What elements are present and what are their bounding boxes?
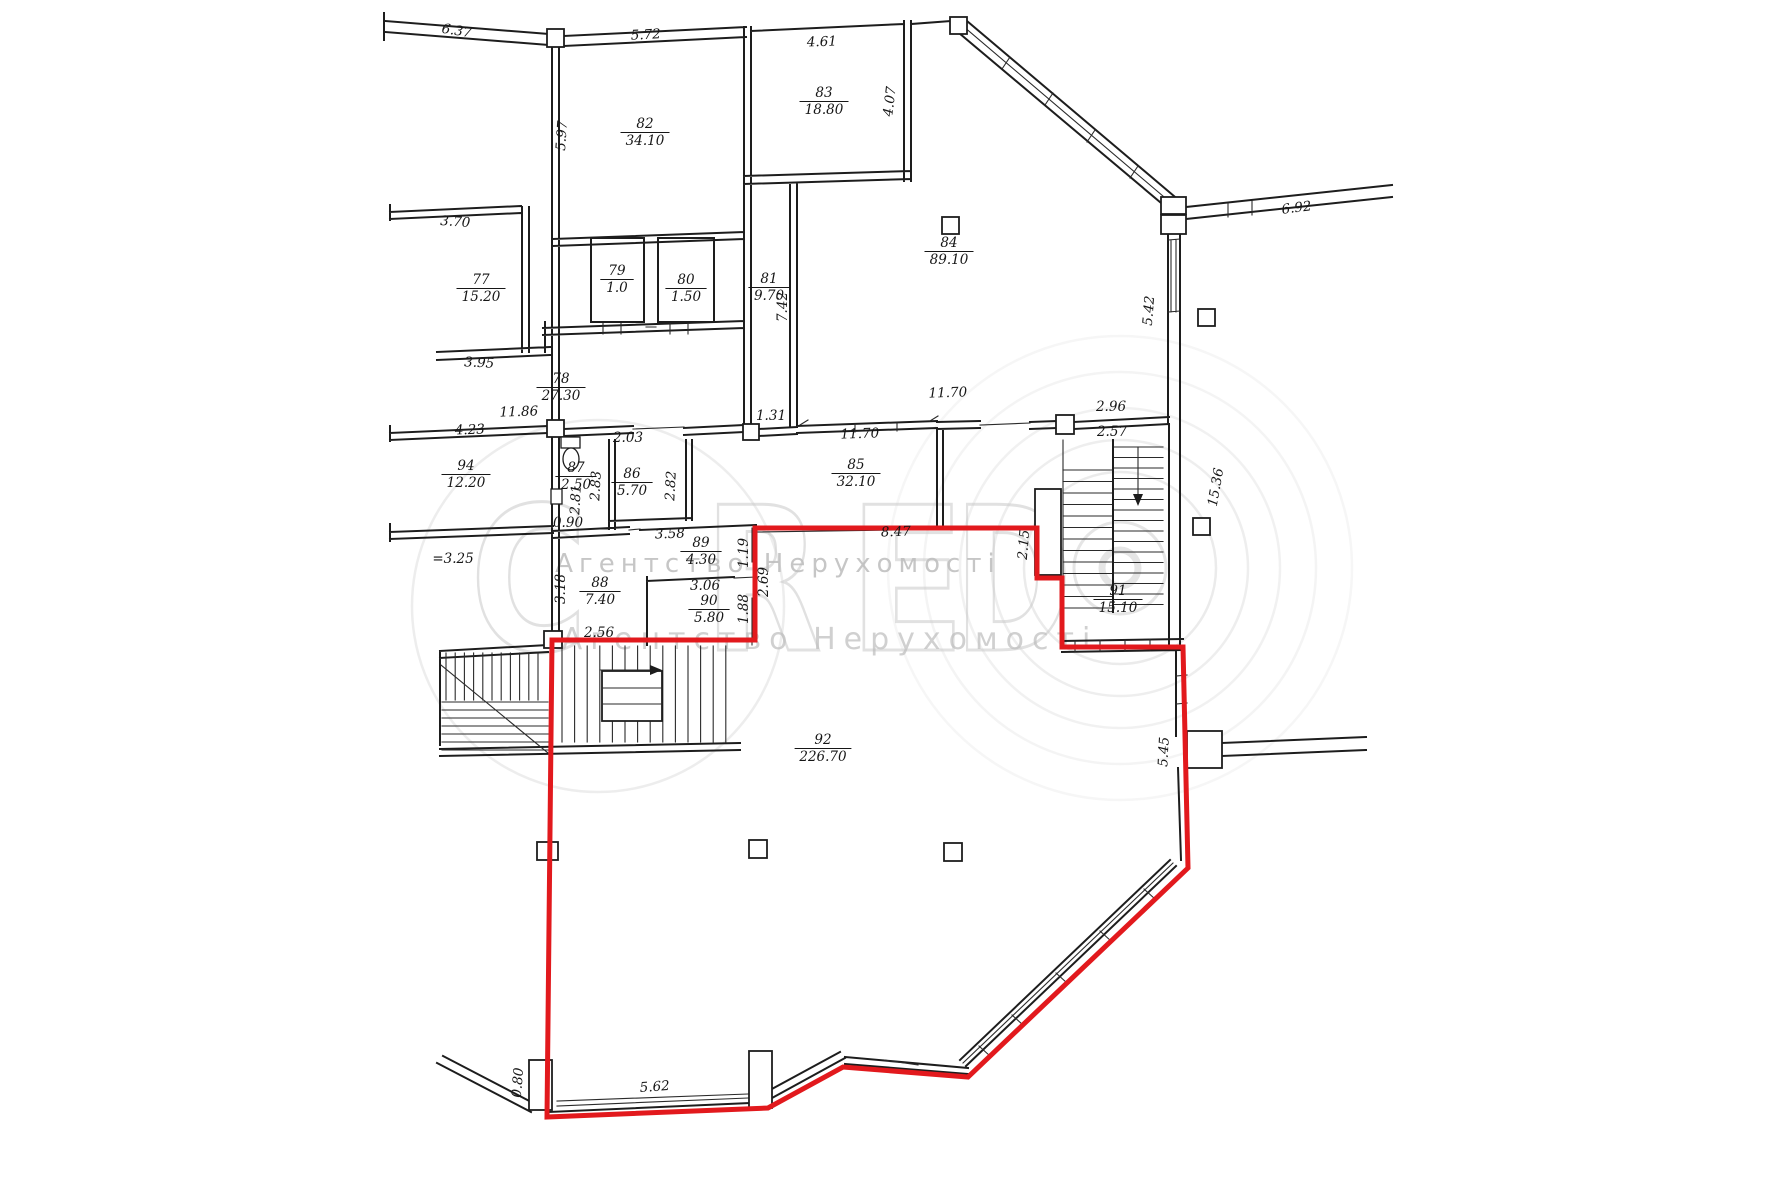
dimension-label: 2.81 bbox=[567, 484, 585, 516]
svg-text:82: 82 bbox=[636, 116, 653, 132]
watermark-letter-E: E bbox=[848, 465, 966, 698]
dimension-label: 0.80 bbox=[509, 1067, 528, 1099]
svg-text:91: 91 bbox=[1109, 583, 1126, 599]
svg-text:1.50: 1.50 bbox=[671, 289, 701, 305]
room-label-84: 8489.10 bbox=[925, 235, 974, 268]
dimension-label: 11.70 bbox=[840, 425, 880, 442]
dimension-label: 2.57 bbox=[1096, 424, 1127, 440]
svg-text:85: 85 bbox=[847, 457, 864, 473]
dimension-label: 11.86 bbox=[499, 403, 539, 420]
dimension-label: 5.42 bbox=[1140, 295, 1159, 326]
watermark-tagline: Агентство Нерухомості bbox=[555, 549, 1000, 579]
room-label-78: 7827.30 bbox=[537, 371, 586, 404]
dimension-label: 1.31 bbox=[756, 408, 786, 424]
svg-text:18.80: 18.80 bbox=[805, 102, 844, 118]
dimension-label: 6.37 bbox=[441, 21, 474, 42]
room-label-94: 9412.20 bbox=[442, 458, 491, 491]
room-label-85: 8532.10 bbox=[832, 457, 881, 490]
dimension-label: 5.62 bbox=[639, 1078, 670, 1096]
svg-text:27.30: 27.30 bbox=[541, 388, 581, 404]
svg-text:15.20: 15.20 bbox=[462, 289, 501, 305]
svg-text:79: 79 bbox=[608, 263, 626, 279]
svg-text:5.70: 5.70 bbox=[617, 483, 647, 499]
svg-text:84: 84 bbox=[940, 235, 957, 251]
svg-text:12.20: 12.20 bbox=[447, 475, 486, 491]
floor-plan-canvas: CRED Агентство Нерухомості Агентство Нер… bbox=[0, 0, 1772, 1181]
dimension-label: 4.07 bbox=[880, 85, 900, 118]
svg-text:92: 92 bbox=[814, 732, 831, 748]
svg-text:34.10: 34.10 bbox=[626, 133, 665, 149]
svg-text:94: 94 bbox=[457, 458, 474, 474]
stair-landing bbox=[602, 671, 662, 721]
dimension-label: 4.61 bbox=[806, 33, 838, 50]
dimension-label: 2.82 bbox=[662, 470, 680, 502]
svg-text:226.70: 226.70 bbox=[798, 749, 847, 765]
dimension-label: 4.23 bbox=[454, 421, 486, 438]
dimension-label: 5.45 bbox=[1155, 736, 1173, 767]
svg-text:78: 78 bbox=[552, 371, 570, 387]
dimension-label: 0.90 bbox=[553, 515, 583, 531]
room-label-79: 791.0 bbox=[600, 263, 633, 296]
svg-text:86: 86 bbox=[623, 466, 641, 482]
dimension-label: 3.06 bbox=[690, 578, 720, 594]
dimension-label: 2.96 bbox=[1095, 399, 1126, 415]
svg-text:77: 77 bbox=[472, 272, 490, 288]
floor-plan-page: CRED Агентство Нерухомості Агентство Нер… bbox=[0, 0, 1772, 1181]
svg-text:32.10: 32.10 bbox=[837, 474, 876, 490]
room-label-92: 92226.70 bbox=[795, 732, 852, 765]
dimension-label: 5.97 bbox=[553, 120, 571, 152]
dimension-label: 1.19 bbox=[736, 538, 752, 568]
dimension-label: 3.70 bbox=[440, 213, 472, 231]
svg-text:7.40: 7.40 bbox=[585, 592, 615, 608]
dimension-label: 2.56 bbox=[583, 625, 614, 641]
dimension-label: 11.70 bbox=[928, 384, 968, 401]
room-label-82: 8234.10 bbox=[621, 116, 670, 149]
dimension-label: 15.36 bbox=[1205, 466, 1228, 507]
svg-text:4.30: 4.30 bbox=[685, 552, 716, 568]
dimension-label: 3.58 bbox=[655, 525, 686, 542]
svg-text:89.10: 89.10 bbox=[930, 252, 969, 268]
svg-text:80: 80 bbox=[677, 272, 695, 288]
dimension-label: =3.25 bbox=[432, 551, 473, 567]
dimension-label: 7.42 bbox=[775, 292, 791, 322]
room-label-80: 801.50 bbox=[665, 272, 706, 305]
room-label-91: 9115.10 bbox=[1094, 583, 1143, 616]
dimension-label: 3.95 bbox=[464, 354, 495, 372]
dimension-label: 2.03 bbox=[612, 430, 643, 446]
dimension-label: 2.69 bbox=[756, 567, 772, 598]
room-label-86: 865.70 bbox=[611, 466, 652, 499]
svg-text:88: 88 bbox=[591, 575, 609, 591]
dimension-label: 5.72 bbox=[630, 26, 661, 44]
dimension-label: 3.18 bbox=[553, 574, 569, 604]
svg-text:87: 87 bbox=[567, 460, 585, 476]
svg-text:89: 89 bbox=[692, 535, 710, 551]
svg-text:81: 81 bbox=[760, 271, 777, 287]
dimension-label: 8.47 bbox=[881, 523, 912, 540]
svg-text:5.80: 5.80 bbox=[694, 610, 724, 626]
svg-text:15.10: 15.10 bbox=[1099, 600, 1138, 616]
dimension-label: 1.88 bbox=[736, 594, 752, 624]
svg-text:1.0: 1.0 bbox=[606, 280, 628, 296]
dimension-label: 6.92 bbox=[1281, 198, 1313, 218]
dimension-label: 2.83 bbox=[587, 470, 605, 502]
room-label-83: 8318.80 bbox=[800, 85, 849, 118]
svg-text:90: 90 bbox=[700, 593, 718, 609]
room-label-77: 7715.20 bbox=[457, 272, 506, 305]
svg-text:83: 83 bbox=[815, 85, 832, 101]
dimension-label: 2.15 bbox=[1015, 529, 1034, 561]
